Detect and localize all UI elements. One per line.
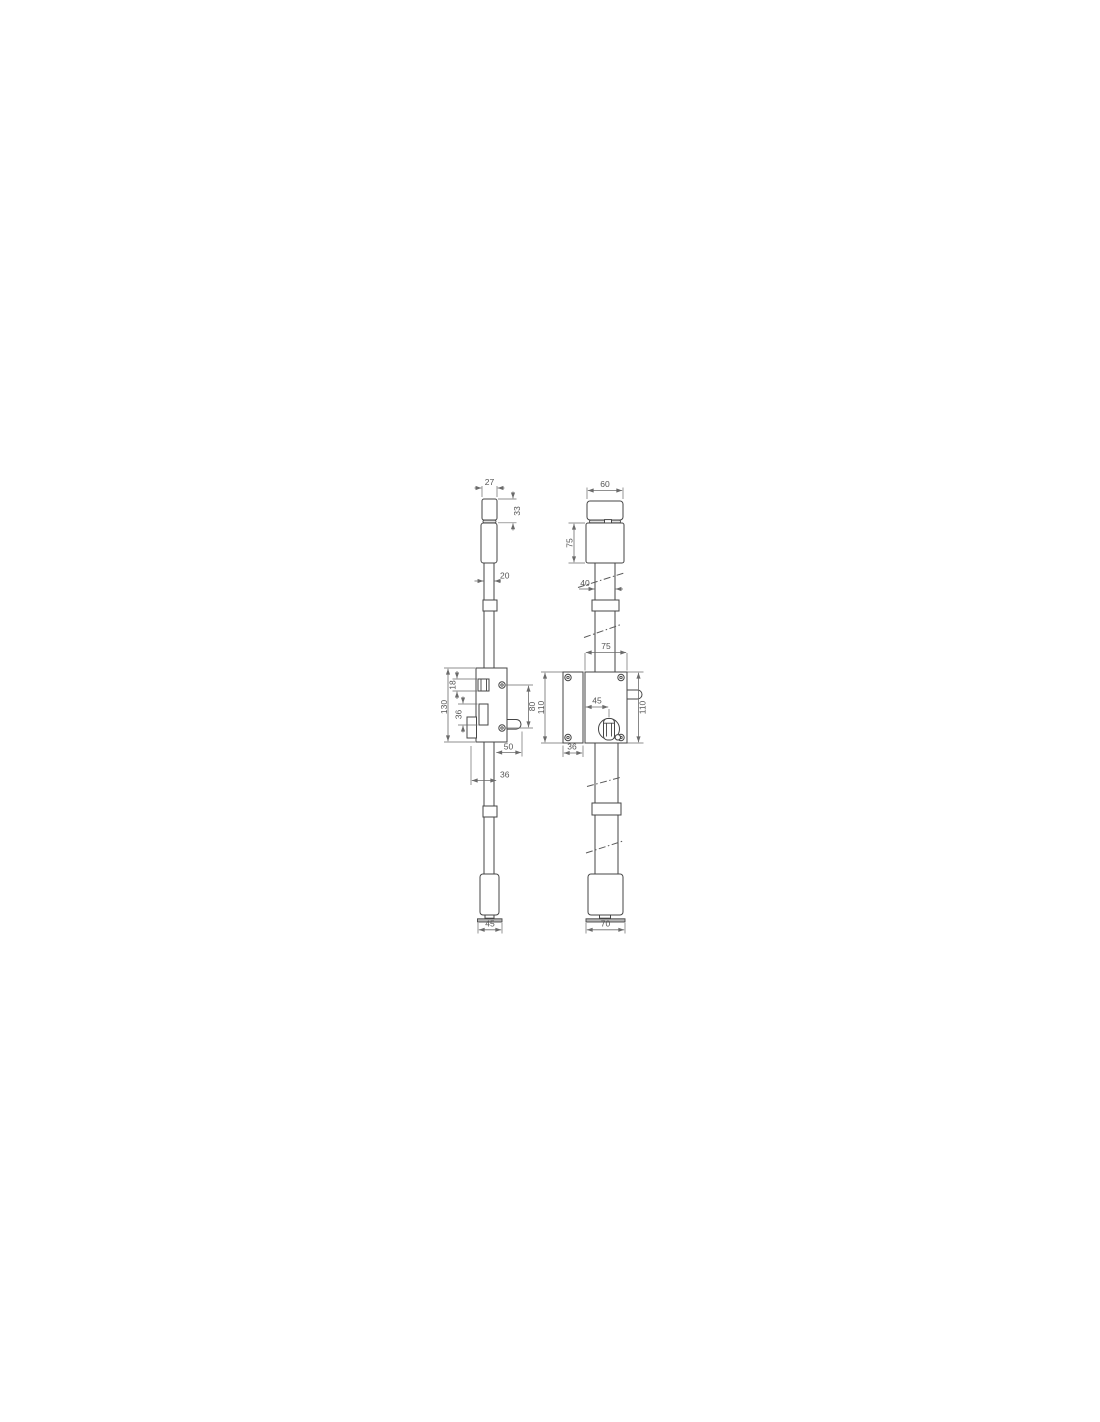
right-case-screw-top bbox=[618, 674, 624, 680]
right-bottom-cap bbox=[588, 874, 623, 915]
dim-label-right-height-right: 110 bbox=[638, 700, 648, 714]
page-canvas: 27 33 20 18 130 36 80 50 bbox=[0, 0, 1100, 1422]
left-upper-guide-collar bbox=[483, 600, 497, 611]
dim-label-right-base-width: 70 bbox=[601, 919, 611, 929]
left-latch bbox=[478, 679, 489, 691]
right-lower-rod-2 bbox=[595, 815, 618, 874]
dim-label-left-rod-width: 20 bbox=[500, 571, 510, 581]
left-upper-rod bbox=[484, 563, 494, 600]
right-bolt bbox=[627, 690, 642, 699]
left-view: 27 33 20 18 130 36 80 50 bbox=[439, 477, 537, 934]
dim-label-right-faceplate-width: 36 bbox=[567, 742, 577, 752]
left-slot bbox=[479, 704, 488, 725]
dim-label-right-cylinder-offset: 45 bbox=[592, 696, 602, 706]
right-faceplate bbox=[563, 672, 583, 743]
ext-line bbox=[482, 486, 497, 497]
right-cylinder-fixing-screw bbox=[615, 735, 620, 740]
dim-label-right-case-width: 75 bbox=[601, 641, 611, 651]
ext-line bbox=[587, 488, 623, 500]
dim-label-left-latch-height: 18 bbox=[448, 680, 458, 690]
dim-label-right-cap-width: 60 bbox=[600, 479, 610, 489]
dim-label-left-backset: 36 bbox=[500, 770, 510, 780]
left-top-body bbox=[481, 523, 497, 563]
left-screw-top bbox=[499, 682, 505, 688]
right-top-body bbox=[586, 523, 624, 563]
right-lower-rod bbox=[595, 743, 618, 803]
dim-label-right-height-left: 110 bbox=[536, 700, 546, 714]
right-faceplate-screw-bottom bbox=[565, 734, 571, 740]
dim-label-left-cap-height: 33 bbox=[512, 506, 522, 516]
dim-label-left-case-height: 130 bbox=[439, 700, 449, 714]
left-lower-rod-2 bbox=[484, 817, 494, 874]
left-screw-bottom bbox=[499, 725, 505, 731]
right-top-washer-notch bbox=[605, 520, 612, 523]
dim-label-right-rod-width: 40 bbox=[580, 578, 590, 588]
dim-label-left-base-width: 45 bbox=[485, 919, 495, 929]
left-lower-rod bbox=[484, 742, 494, 806]
right-upper-rod bbox=[595, 563, 615, 600]
left-bottom-cap bbox=[480, 874, 499, 915]
technical-drawing: 27 33 20 18 130 36 80 50 bbox=[0, 0, 1100, 1422]
dim-label-left-cap-width: 27 bbox=[485, 477, 495, 487]
right-upper-guide-collar bbox=[592, 600, 619, 611]
left-top-cap bbox=[482, 499, 497, 520]
right-view: 60 75 40 75 110 45 110 36 70 bbox=[536, 479, 648, 934]
right-top-cap bbox=[587, 501, 623, 520]
right-lower-guide-collar bbox=[592, 803, 621, 815]
dim-label-right-body-height: 75 bbox=[565, 538, 575, 548]
right-faceplate-screw-top bbox=[565, 674, 571, 680]
left-lower-guide-collar bbox=[483, 806, 497, 817]
left-upper-rod-2 bbox=[484, 611, 494, 668]
dim-label-left-slot-height: 36 bbox=[454, 710, 464, 720]
left-top-washer bbox=[483, 520, 496, 523]
right-cylinder-plug bbox=[604, 719, 615, 741]
left-strike-box bbox=[467, 717, 477, 738]
dim-label-left-bolt-reach: 50 bbox=[504, 742, 514, 752]
